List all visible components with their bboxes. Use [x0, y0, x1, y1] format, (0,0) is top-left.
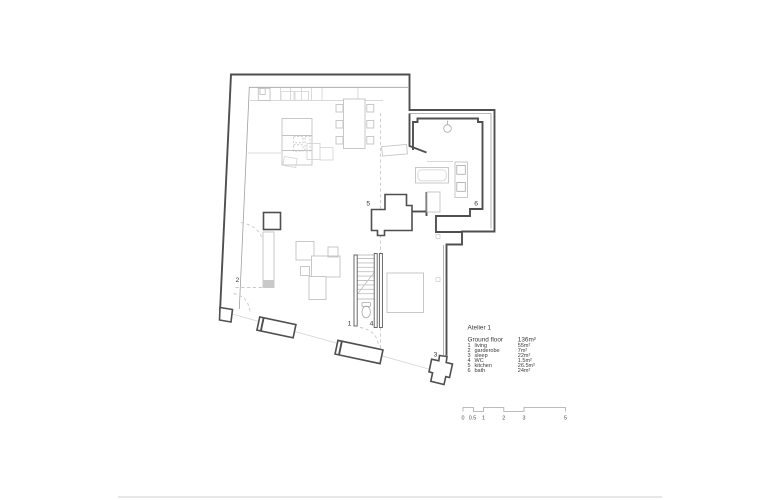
room-label-4: 4 [370, 321, 374, 328]
sink [457, 183, 466, 192]
wardrobe-shelf [263, 280, 275, 288]
shower [427, 192, 440, 212]
wardrobe-column [264, 213, 281, 230]
legend-room-area: 24m² [518, 368, 531, 374]
room-label-5: 5 [366, 201, 370, 208]
scale-mark: 2 [502, 416, 505, 422]
benches [257, 317, 383, 364]
wall-outlet-symbol [436, 235, 440, 239]
scale-mark: 0.5 [469, 416, 477, 422]
kitchen-counter [248, 119, 312, 168]
wardrobe-cabinet [263, 232, 274, 288]
stair-rail [374, 254, 377, 328]
legend-room-num: 6 [468, 368, 471, 374]
bath-fixtures [416, 121, 468, 213]
stairs [354, 254, 382, 328]
wall-foot [220, 308, 233, 323]
chair [336, 105, 343, 113]
wardrobe [263, 213, 281, 288]
scale-mark: 5 [564, 416, 567, 422]
room-label-1: 1 [348, 321, 352, 328]
legend-room-name: bath [475, 368, 486, 374]
toilet-bowl [362, 306, 370, 318]
room-label-6: 6 [474, 201, 478, 208]
scale-mark: 0 [462, 416, 465, 422]
chair [367, 121, 374, 129]
sink [457, 166, 466, 175]
chair [336, 121, 343, 129]
dining-table [336, 99, 374, 149]
chair [367, 105, 374, 113]
room-label-3: 3 [434, 351, 438, 358]
room-label-2: 2 [236, 277, 240, 284]
chair [336, 137, 343, 145]
entry-door [429, 356, 453, 385]
core-wc [372, 195, 413, 236]
ceiling-lamp-icon [444, 125, 452, 133]
floor-plan-canvas: 1 2 3 4 5 6 Atelier 1 Ground floor 136m²… [0, 0, 780, 500]
stair-rail [379, 254, 382, 328]
scale-mark: 1 [482, 416, 485, 422]
wall-outlet-symbol [436, 278, 440, 282]
scale-bar: 0 0.5 1 2 3 5 [462, 408, 568, 422]
floor-plan-sheet: 1 2 3 4 5 6 Atelier 1 Ground floor 136m²… [0, 0, 780, 500]
bed [387, 235, 440, 313]
stair-rail [354, 255, 357, 326]
table [344, 99, 366, 149]
scale-mark: 3 [523, 416, 526, 422]
title-block: Atelier 1 Ground floor 136m² [468, 325, 536, 344]
project-title: Atelier 1 [468, 325, 492, 332]
chair [367, 137, 374, 145]
legend: 1 living 55m² 2 garderobe 7m² 3 sleep 22… [468, 343, 536, 374]
